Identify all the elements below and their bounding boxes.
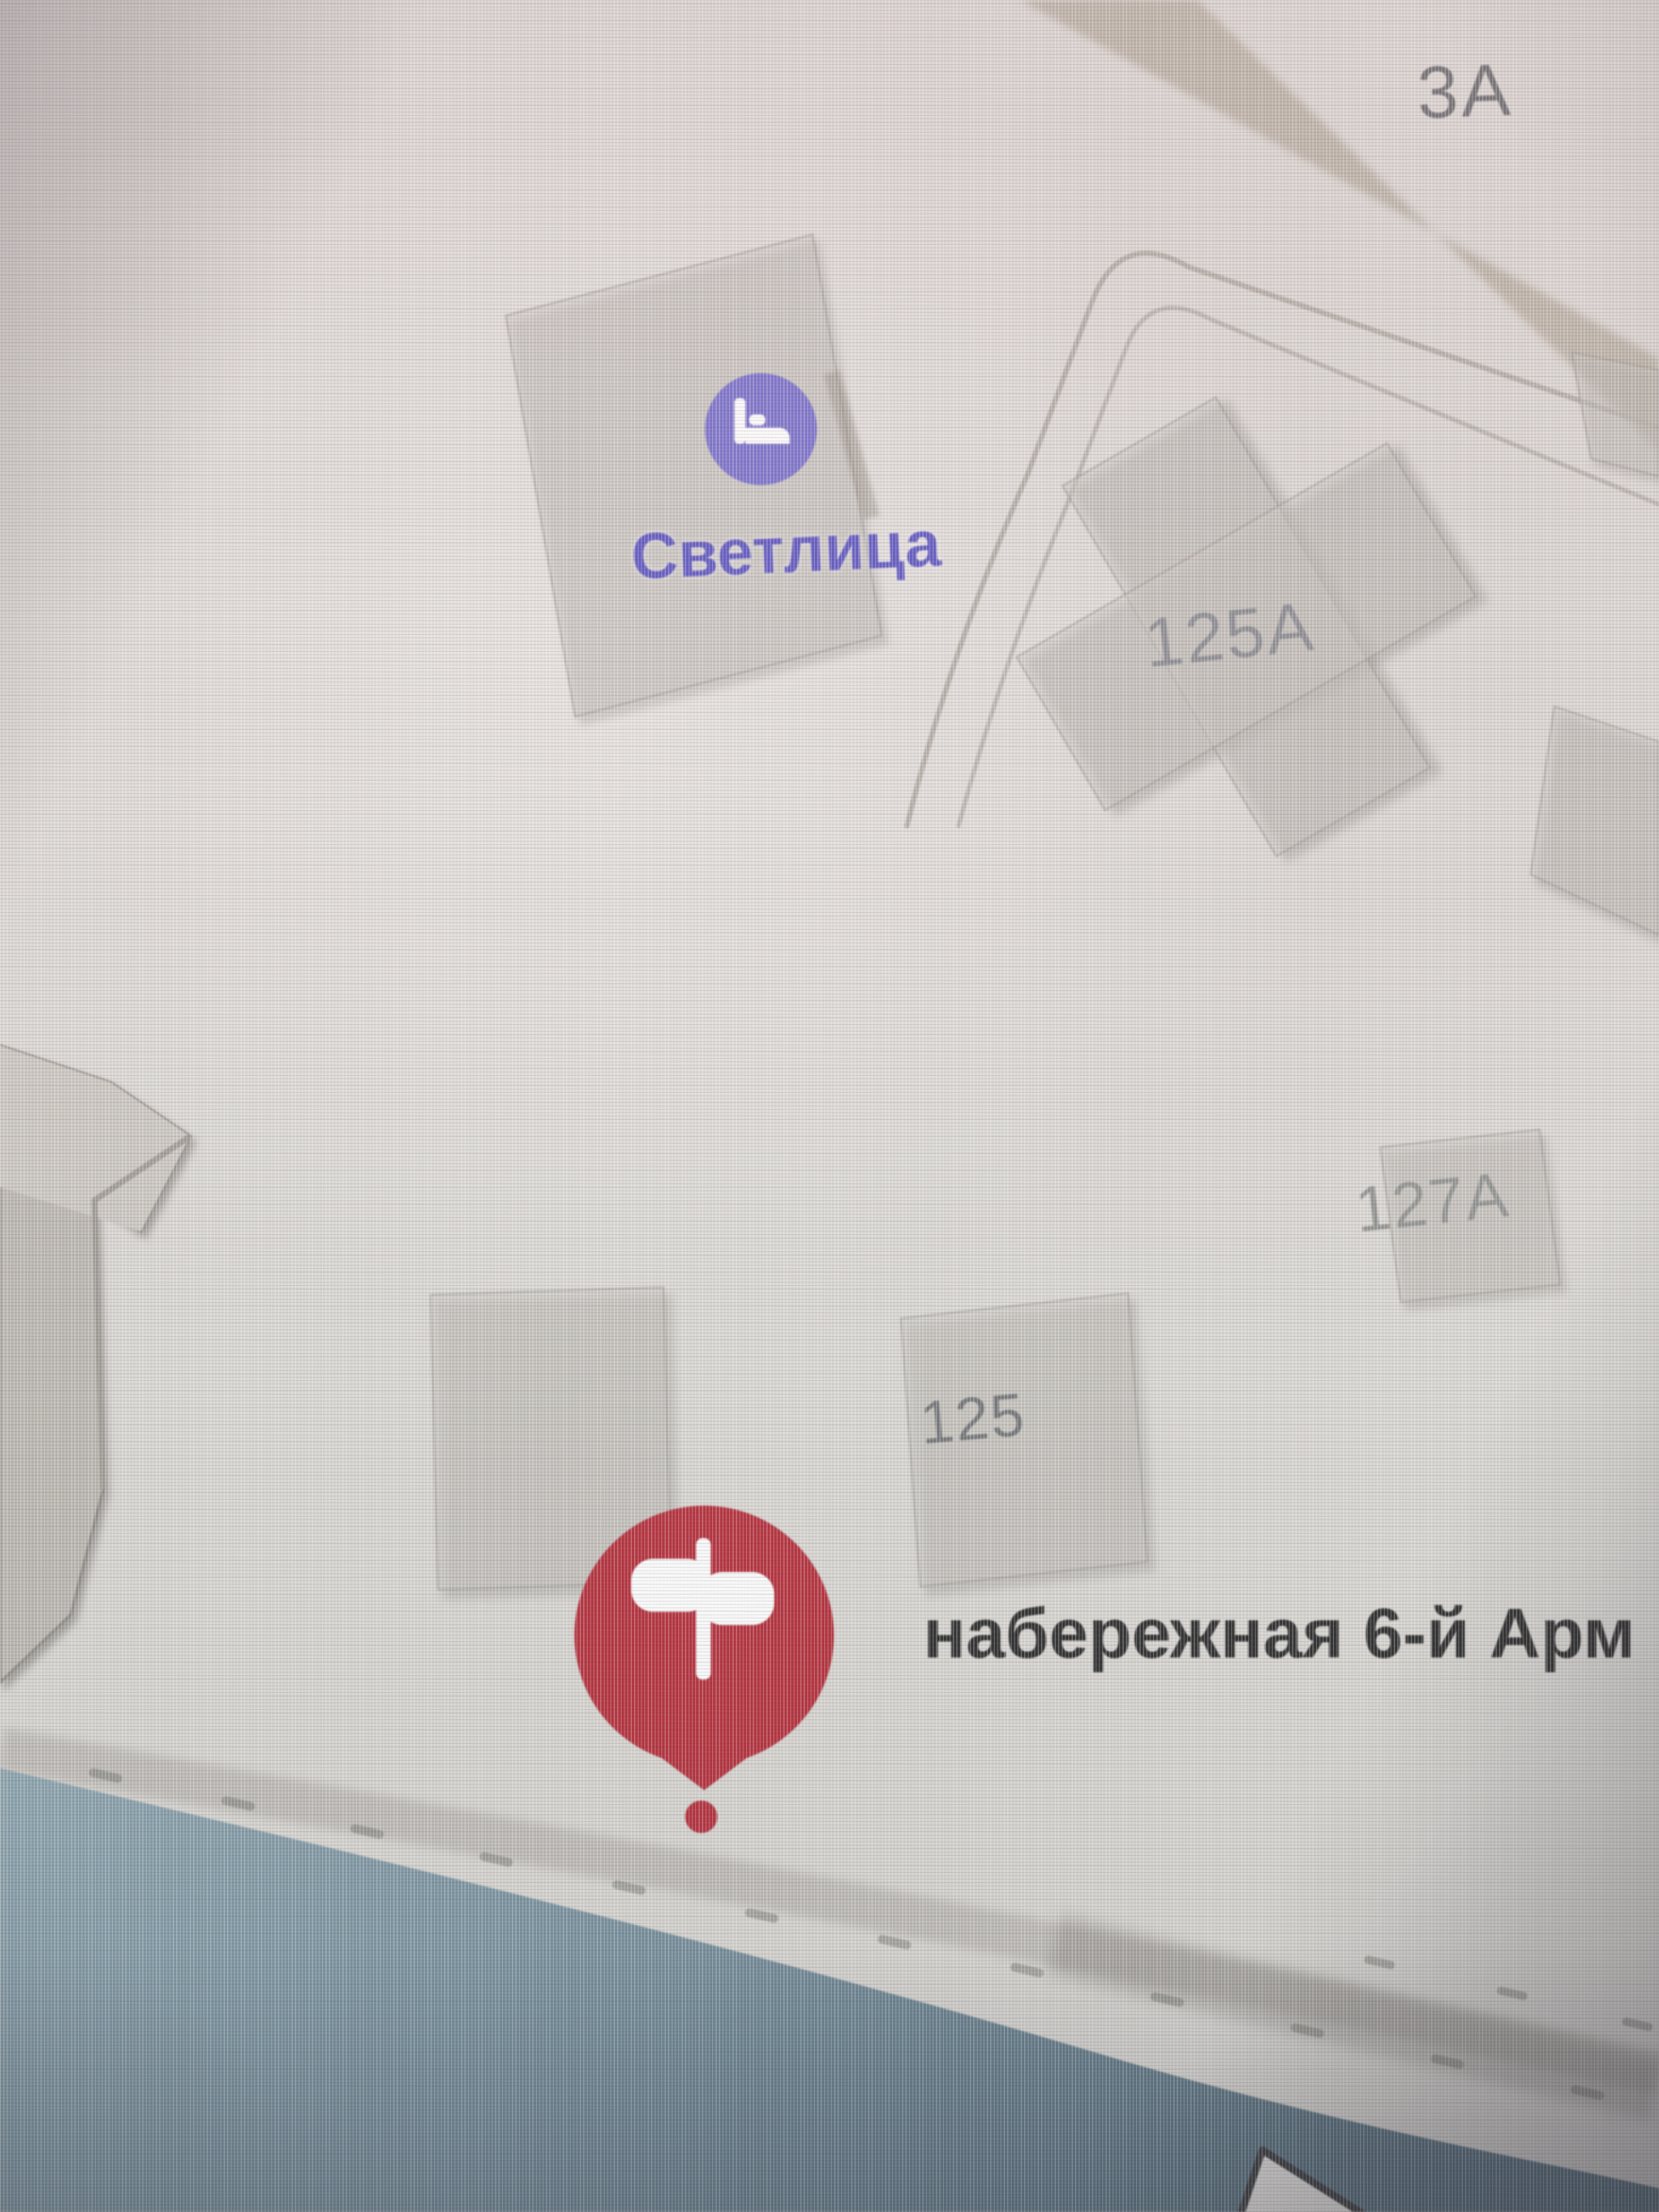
dirt-road-band [1020,0,1659,451]
building-label-125: 125 [918,1385,1028,1454]
river-water [0,1768,1659,2212]
map-canvas[interactable]: 3А 125А 127А 125 Светлица набережная 6-й… [0,0,1659,2212]
building-label-125a: 125А [1141,591,1318,678]
building-label-3a: 3А [1416,53,1514,130]
map-layers [0,0,1659,2212]
building-far-left-3d [0,1046,190,1683]
building-label-127a: 127А [1352,1163,1512,1242]
poi-label[interactable]: Светлица [615,510,956,590]
building-right-upper [1572,352,1659,476]
map-photo: 3А 125А 127А 125 Светлица набережная 6-й… [0,0,1659,2212]
marker-tail [640,1742,768,1790]
marker-anchor-dot [685,1801,717,1833]
building-right-lower [1531,706,1659,935]
poi-hotel-marker[interactable] [705,373,817,485]
building-svetlitsa [506,234,882,717]
destination-marker[interactable] [574,1506,834,1833]
buildings-layer [431,234,1659,1590]
street-label: набережная 6-й Арм [923,1599,1635,1669]
